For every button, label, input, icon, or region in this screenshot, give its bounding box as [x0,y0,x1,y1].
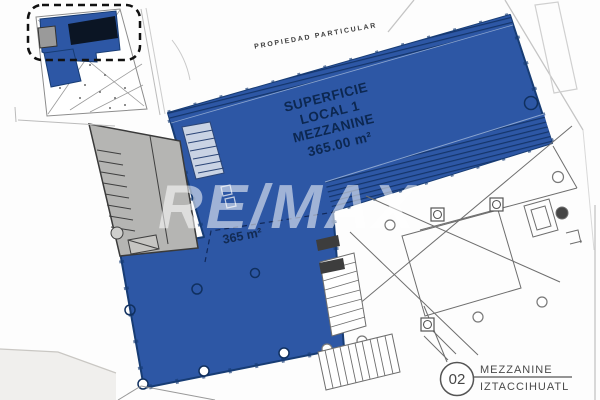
fixture-circle [111,227,123,239]
property-boundary-label: PROPIEDAD PARTICULAR [254,22,378,51]
inset-gray-block [38,26,57,48]
title-block: 02 MEZZANINE IZTACCIHUATL [441,363,573,396]
keyplan-inset [18,5,165,126]
floor-plan-page: SUPERFICIE LOCAL 1 MEZZANINE 365.00 m² 3… [0,0,600,400]
sheet-project-label: IZTACCIHUATL [480,381,569,393]
sheet-number: 02 [449,371,466,388]
sheet-level-label: MEZZANINE [480,364,553,376]
sidewalk-patch [0,349,116,400]
floor-plan-drawing: SUPERFICIE LOCAL 1 MEZZANINE 365.00 m² 3… [0,0,600,400]
watermark: RE/MAX [158,173,418,242]
dark-column-marker [556,207,568,219]
